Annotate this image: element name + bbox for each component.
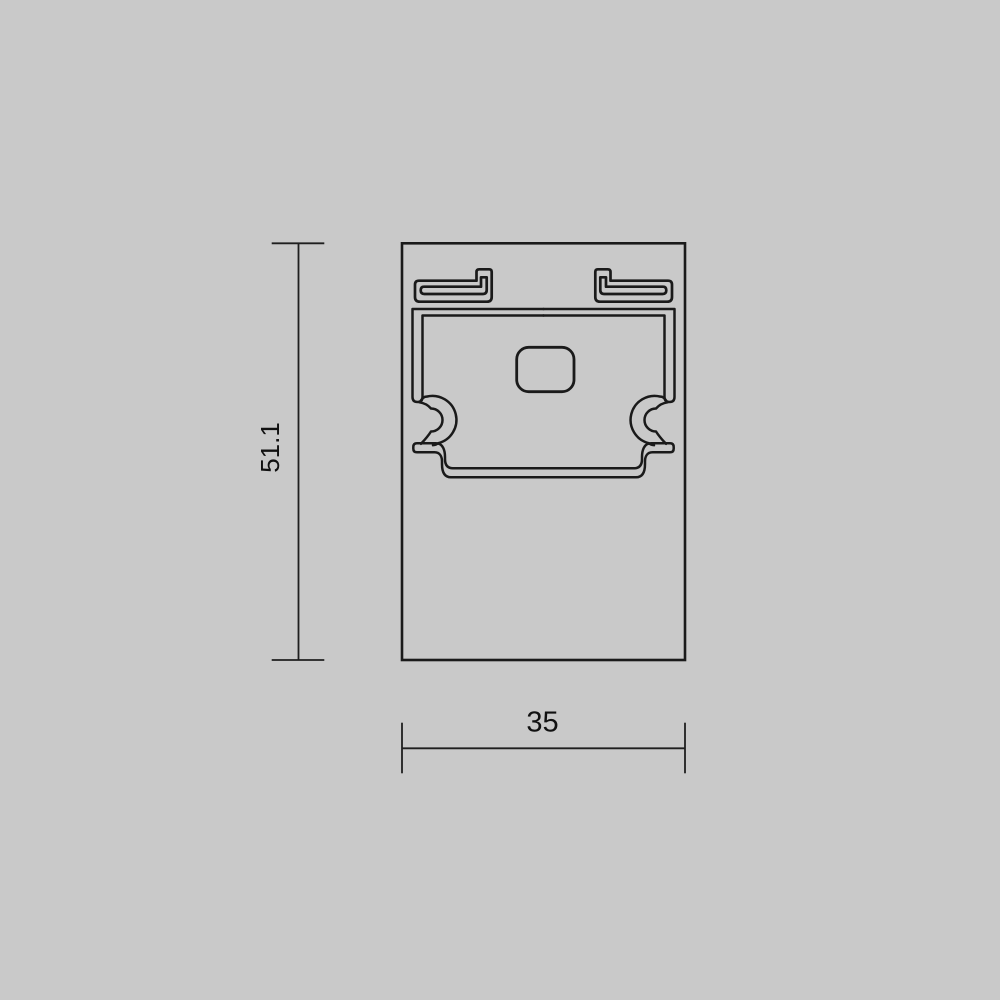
- dimension-width-label: 35: [526, 707, 558, 739]
- channel-left-half: [413, 309, 544, 477]
- mounting-clip-right: [595, 269, 672, 301]
- technical-drawing-canvas: 51.1 35: [0, 0, 1000, 1000]
- screw-boss-inner-arc: [420, 402, 443, 444]
- channel-right-half: [544, 309, 675, 477]
- central-cable-opening: [517, 347, 574, 391]
- mounting-clip-left: [415, 269, 492, 301]
- profile-cross-section-drawing: 51.1 35: [0, 0, 1000, 1000]
- dimension-height: 51.1: [255, 243, 324, 660]
- led-tray-and-arm: [413, 443, 543, 477]
- top-plate-and-side-wall: [413, 309, 544, 402]
- dimension-height-label: 51.1: [255, 422, 285, 473]
- dimension-width: 35: [402, 707, 685, 774]
